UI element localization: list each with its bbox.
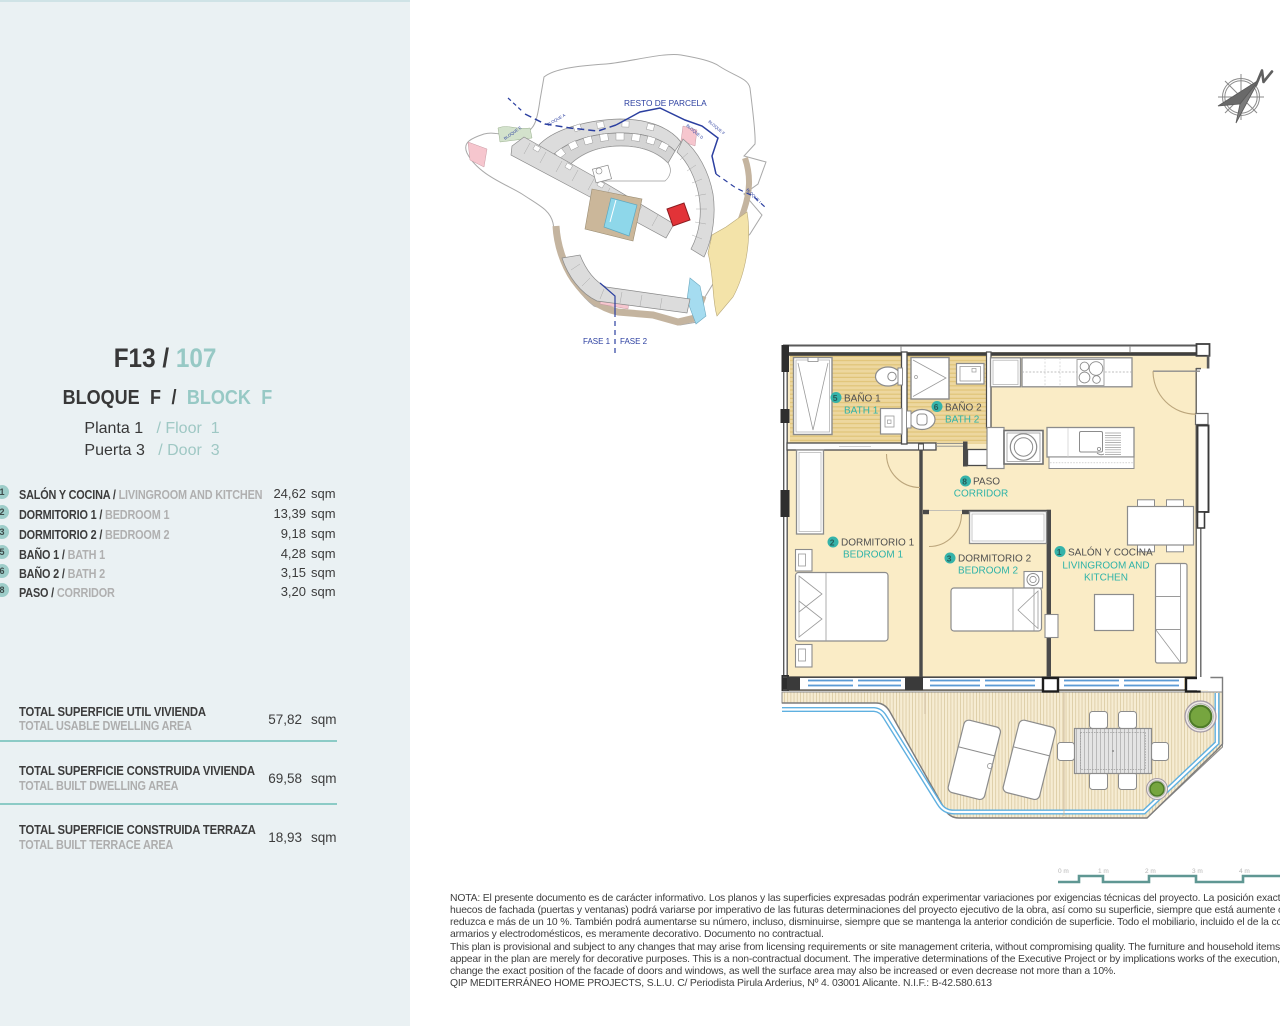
- svg-text:BATH 1: BATH 1: [844, 406, 879, 417]
- svg-text:6: 6: [934, 402, 939, 412]
- svg-text:1 m: 1 m: [1098, 868, 1109, 875]
- svg-text:PASO: PASO: [973, 477, 1000, 488]
- svg-text:DORMITORIO 2: DORMITORIO 2: [958, 554, 1032, 565]
- svg-text:4 m: 4 m: [1239, 868, 1250, 875]
- svg-text:2 m: 2 m: [1145, 868, 1156, 875]
- svg-text:0 m: 0 m: [1058, 868, 1069, 875]
- svg-text:3: 3: [947, 554, 952, 564]
- svg-text:BATH 2: BATH 2: [945, 415, 980, 426]
- svg-text:BEDROOM 1: BEDROOM 1: [843, 550, 903, 561]
- svg-text:1: 1: [1057, 547, 1062, 557]
- svg-text:BAÑO 1: BAÑO 1: [844, 392, 881, 405]
- svg-text:BEDROOM 2: BEDROOM 2: [958, 566, 1018, 577]
- svg-text:RESTO DE PARCELA: RESTO DE PARCELA: [624, 98, 707, 108]
- svg-text:2: 2: [830, 538, 835, 548]
- svg-text:FASE 2: FASE 2: [620, 337, 648, 346]
- svg-text:DORMITORIO 1: DORMITORIO 1: [841, 538, 915, 549]
- svg-text:FASE 1: FASE 1: [583, 337, 611, 346]
- svg-text:BAÑO 2: BAÑO 2: [945, 401, 982, 414]
- svg-text:KITCHEN: KITCHEN: [1084, 573, 1128, 584]
- svg-text:5: 5: [833, 393, 838, 403]
- svg-text:8: 8: [962, 477, 967, 487]
- svg-text:LIVINGROOM AND: LIVINGROOM AND: [1062, 561, 1149, 572]
- svg-text:SALÓN Y COCINA: SALÓN Y COCINA: [1068, 546, 1153, 559]
- svg-text:3 m: 3 m: [1192, 868, 1203, 875]
- svg-text:CORRIDOR: CORRIDOR: [954, 489, 1008, 500]
